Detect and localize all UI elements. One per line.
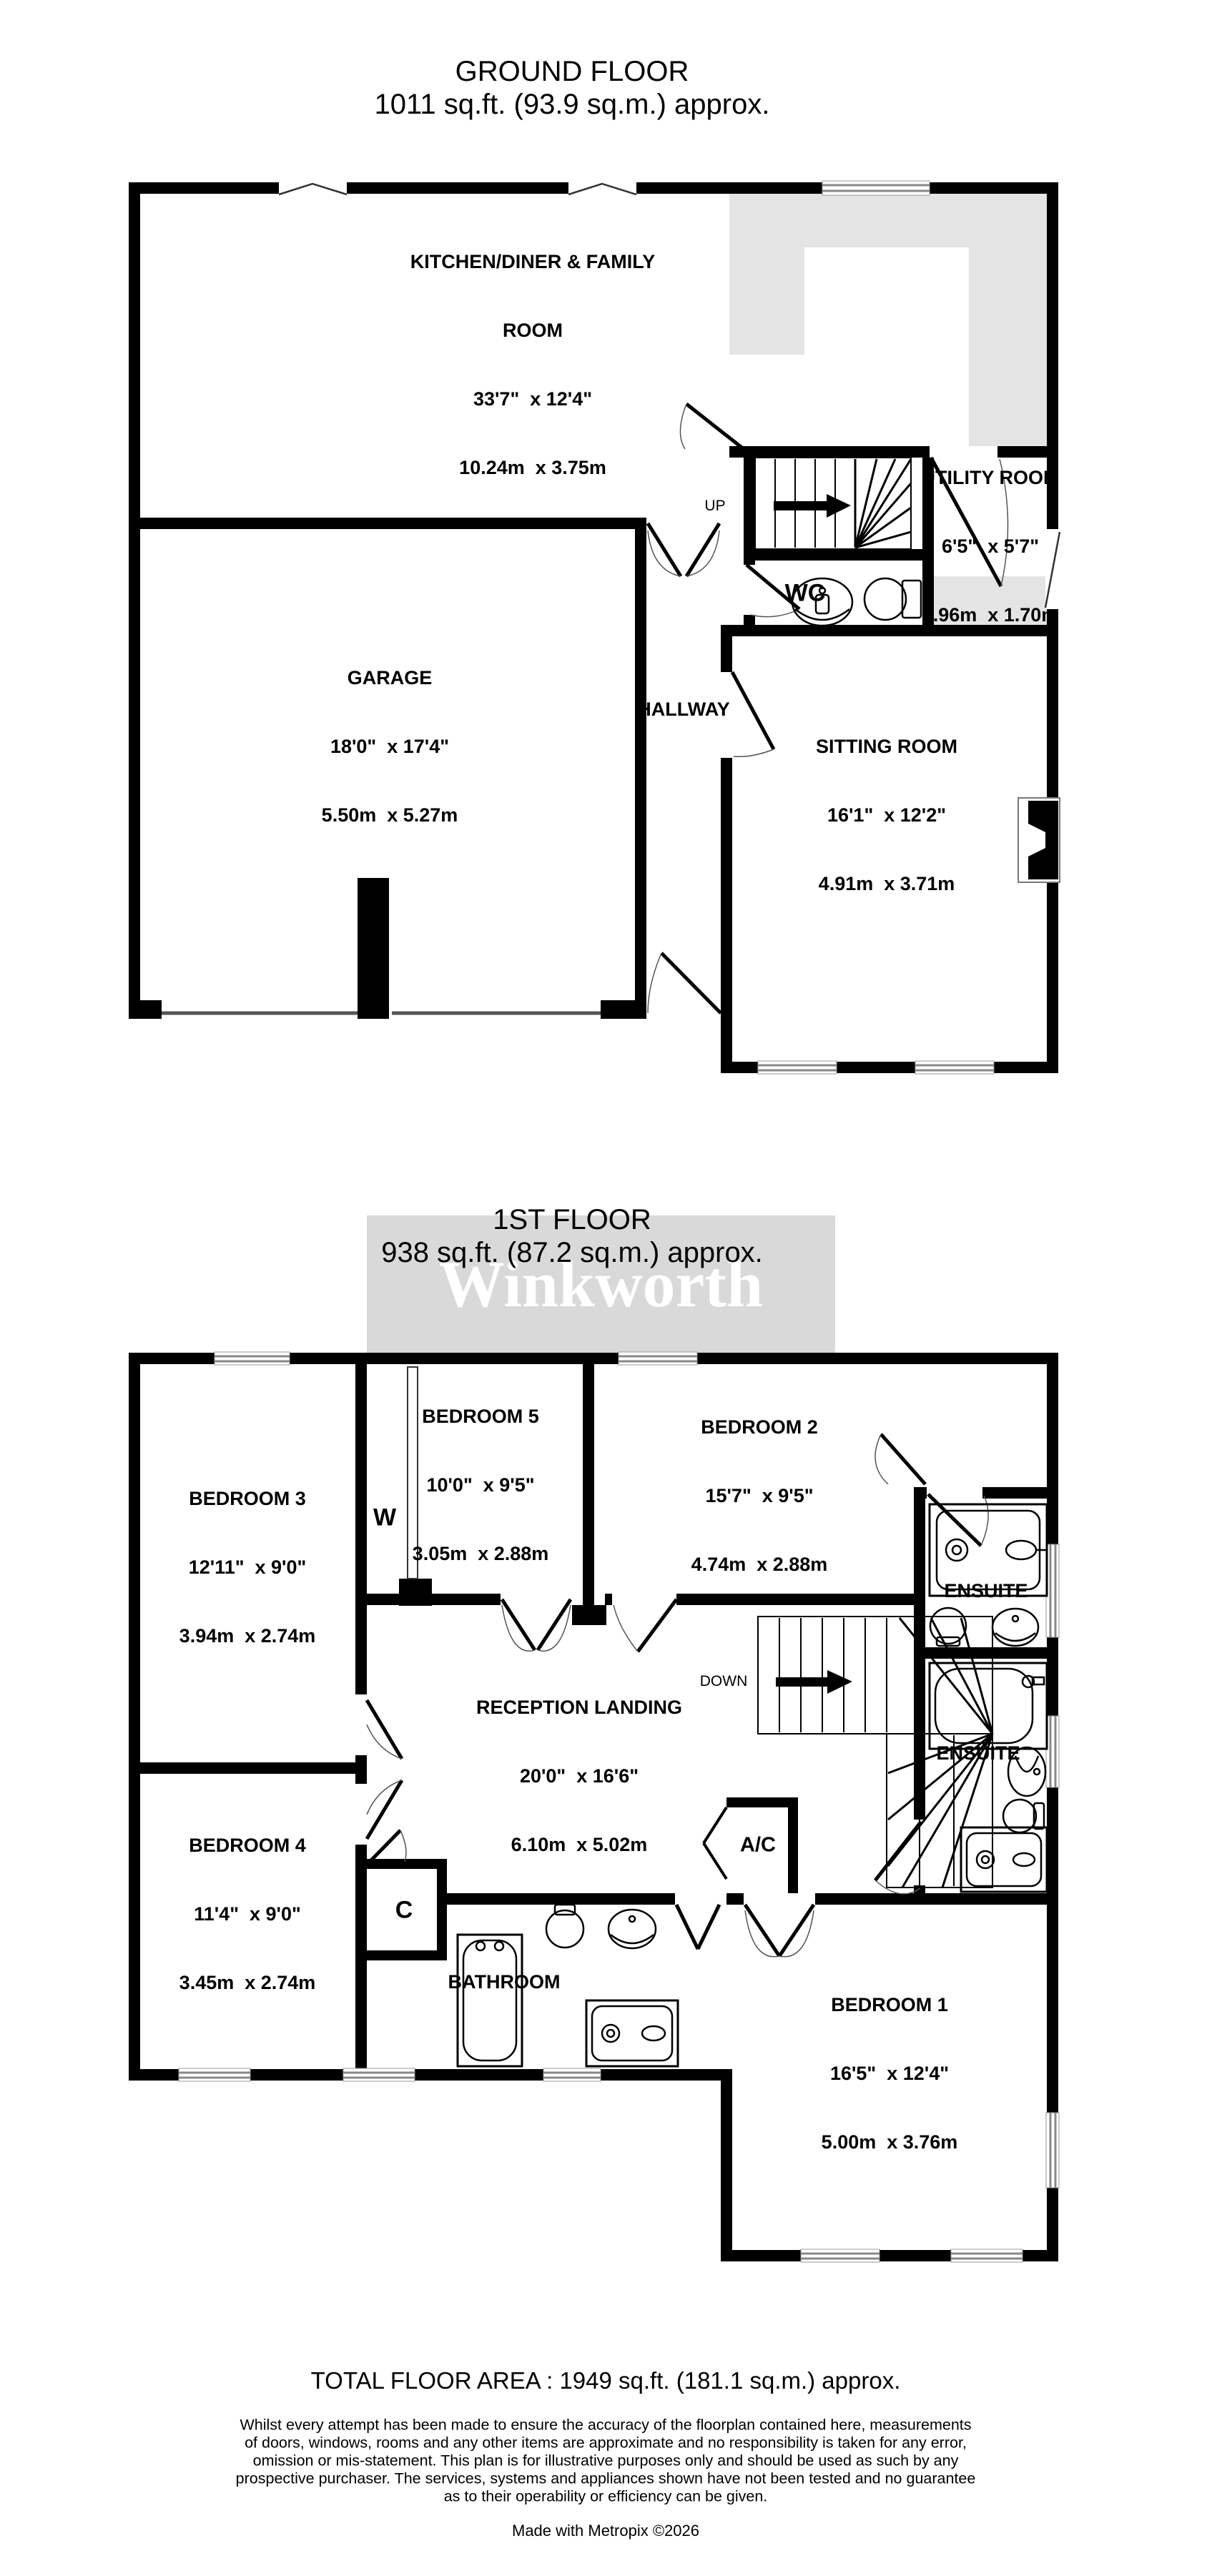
staircase-up-icon (755, 458, 911, 549)
room-name: BEDROOM 4 (179, 1834, 316, 1857)
room-dims-metric: 3.45m x 2.74m (179, 1971, 316, 1994)
disclaimer-line: Whilst every attempt has been made to en… (240, 2417, 971, 2434)
room-dims-metric: 4.74m x 2.88m (691, 1553, 828, 1576)
room-dims-metric: 6.10m x 5.02m (476, 1833, 682, 1856)
first-floor-title: 1ST FLOOR (493, 1203, 651, 1236)
room-dims-metric: 1.96m x 1.70m (922, 603, 1060, 626)
stairs-down-label: DOWN (700, 1673, 748, 1690)
garage-door-icon (129, 878, 646, 1019)
room-name: GARAGE (322, 666, 458, 689)
bathroom-bath-icon (458, 1935, 522, 2066)
room-name: RECEPTION LANDING (476, 1696, 682, 1719)
room-label-bedroom1: BEDROOM 1 16'5" x 12'4" 5.00m x 3.76m (822, 1948, 958, 2199)
room-label-wc: WC (785, 580, 826, 608)
room-dims-imperial: 33'7" x 12'4" (410, 388, 656, 410)
room-label-hallway: HALLWAY (637, 698, 730, 721)
stairs-up-label: UP (704, 498, 725, 515)
disclaimer-line: as to their operability or efficiency ca… (444, 2488, 768, 2506)
airing-cupboard-label: A/C (740, 1834, 776, 1857)
room-name: BEDROOM 1 (822, 1993, 958, 2016)
ensuite-top-sink-icon (992, 1609, 1038, 1646)
ground-floor-title: GROUND FLOOR (455, 55, 689, 88)
disclaimer-line: of doors, windows, rooms and any other i… (245, 2434, 967, 2452)
kitchen-counter-icon (729, 194, 1047, 448)
room-dims-imperial: 20'0" x 16'6" (476, 1765, 682, 1787)
room-dims-metric: 5.50m x 5.27m (322, 804, 458, 826)
room-label-bedroom4: BEDROOM 4 11'4" x 9'0" 3.45m x 2.74m (179, 1788, 316, 2040)
room-dims-imperial: 18'0" x 17'4" (322, 735, 458, 758)
room-label-garage: GARAGE 18'0" x 17'4" 5.50m x 5.27m (322, 621, 458, 872)
bathroom-sink-icon (609, 1910, 656, 1948)
room-name: UTILITY ROOM (922, 466, 1060, 489)
room-label-bedroom2: BEDROOM 2 15'7" x 9'5" 4.74m x 2.88m (691, 1370, 828, 1622)
room-dims-imperial: 15'7" x 9'5" (691, 1484, 828, 1507)
total-floor-area: TOTAL FLOOR AREA : 1949 sq.ft. (181.1 sq… (311, 2367, 901, 2394)
room-label-sitting-room: SITTING ROOM 16'1" x 12'2" 4.91m x 3.71m (816, 689, 957, 941)
room-dims-metric: 3.05m x 2.88m (413, 1542, 549, 1565)
room-label-bedroom5: BEDROOM 5 10'0" x 9'5" 3.05m x 2.88m (413, 1359, 549, 1611)
room-dims-imperial: 16'1" x 12'2" (816, 804, 957, 826)
room-dims-metric: 10.24m x 3.75m (410, 456, 656, 479)
room-label-bathroom: BATHROOM (448, 1970, 561, 1993)
disclaimer-line: omission or mis-statement. This plan is … (253, 2452, 959, 2470)
room-label-ensuite-mid: ENSUITE (936, 1742, 1020, 1765)
disclaimer-line: prospective purchaser. The services, sys… (236, 2470, 976, 2488)
room-dims-imperial: 6'5" x 5'7" (922, 535, 1060, 558)
fireplace-icon (1018, 798, 1060, 882)
room-name: BEDROOM 3 (179, 1487, 316, 1510)
ground-floor-subtitle: 1011 sq.ft. (93.9 sq.m.) approx. (375, 88, 770, 121)
room-label-utility: UTILITY ROOM 6'5" x 5'7" 1.96m x 1.70m (922, 420, 1060, 672)
room-name: BEDROOM 2 (691, 1416, 828, 1438)
room-label-kitchen: KITCHEN/DINER & FAMILY ROOM 33'7" x 12'4… (410, 204, 656, 525)
first-floor-subtitle: 938 sq.ft. (87.2 sq.m.) approx. (381, 1236, 763, 1269)
room-dims-imperial: 16'5" x 12'4" (822, 2062, 958, 2085)
room-label-landing: RECEPTION LANDING 20'0" x 16'6" 6.10m x … (476, 1650, 682, 1902)
bathroom-shower-icon (586, 2000, 678, 2066)
room-name: KITCHEN/DINER & FAMILY (410, 250, 656, 273)
room-dims-metric: 5.00m x 3.76m (822, 2131, 958, 2153)
room-label-bedroom3: BEDROOM 3 12'11" x 9'0" 3.94m x 2.74m (179, 1441, 316, 1693)
metropix-credit: Made with Metropix ©2026 (512, 2522, 699, 2540)
room-name: ROOM (410, 319, 656, 342)
bathroom-toilet-icon (546, 1905, 583, 1948)
room-dims-imperial: 12'11" x 9'0" (179, 1556, 316, 1579)
room-dims-metric: 4.91m x 3.71m (816, 872, 957, 895)
room-name: BEDROOM 5 (413, 1405, 549, 1428)
floorplan-canvas: Winkworth (0, 0, 1212, 2576)
room-label-ensuite-top: ENSUITE (944, 1579, 1028, 1602)
room-dims-metric: 3.94m x 2.74m (179, 1624, 316, 1647)
room-dims-imperial: 10'0" x 9'5" (413, 1474, 549, 1496)
ensuite-mid-shower-icon (961, 1827, 1047, 1892)
wardrobe-label: W (373, 1504, 396, 1532)
wc-toilet-icon (864, 578, 921, 620)
room-name: SITTING ROOM (816, 735, 957, 758)
room-dims-imperial: 11'4" x 9'0" (179, 1903, 316, 1925)
cupboard-label: C (395, 1897, 413, 1925)
